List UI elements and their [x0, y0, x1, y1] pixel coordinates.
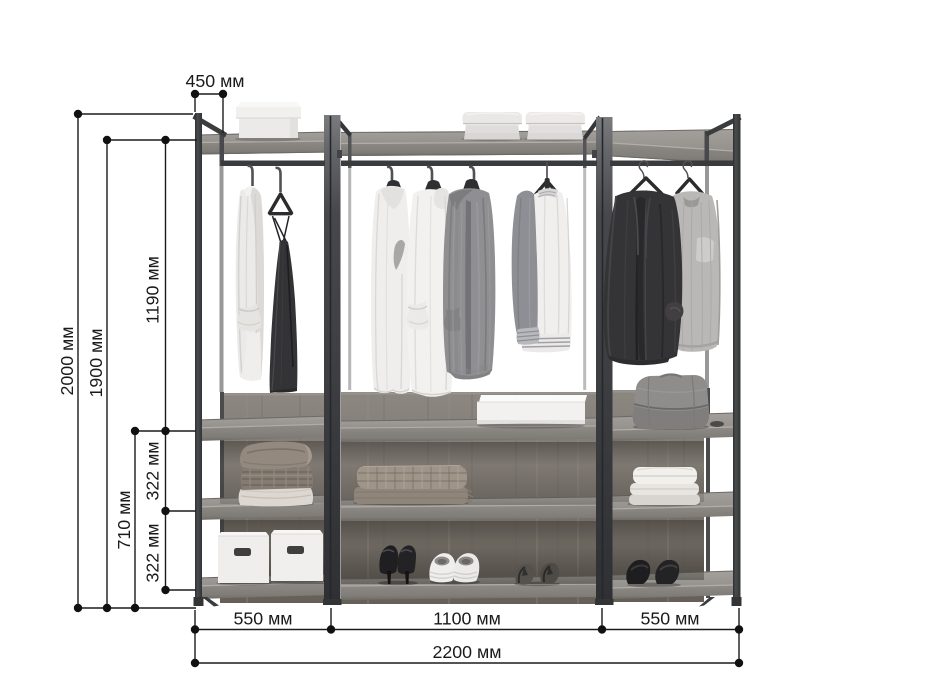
svg-text:322 мм: 322 мм: [143, 441, 163, 500]
svg-text:2200 мм: 2200 мм: [433, 642, 502, 662]
svg-text:1190 мм: 1190 мм: [143, 256, 163, 324]
svg-text:550 мм: 550 мм: [233, 609, 292, 629]
svg-text:450 мм: 450 мм: [185, 71, 244, 91]
svg-text:1100 мм: 1100 мм: [433, 609, 501, 629]
svg-text:710 мм: 710 мм: [114, 490, 134, 549]
svg-text:550 мм: 550 мм: [640, 609, 699, 629]
svg-text:322 мм: 322 мм: [143, 523, 163, 582]
svg-text:2000 мм: 2000 мм: [57, 327, 77, 396]
svg-text:1900 мм: 1900 мм: [86, 329, 106, 398]
